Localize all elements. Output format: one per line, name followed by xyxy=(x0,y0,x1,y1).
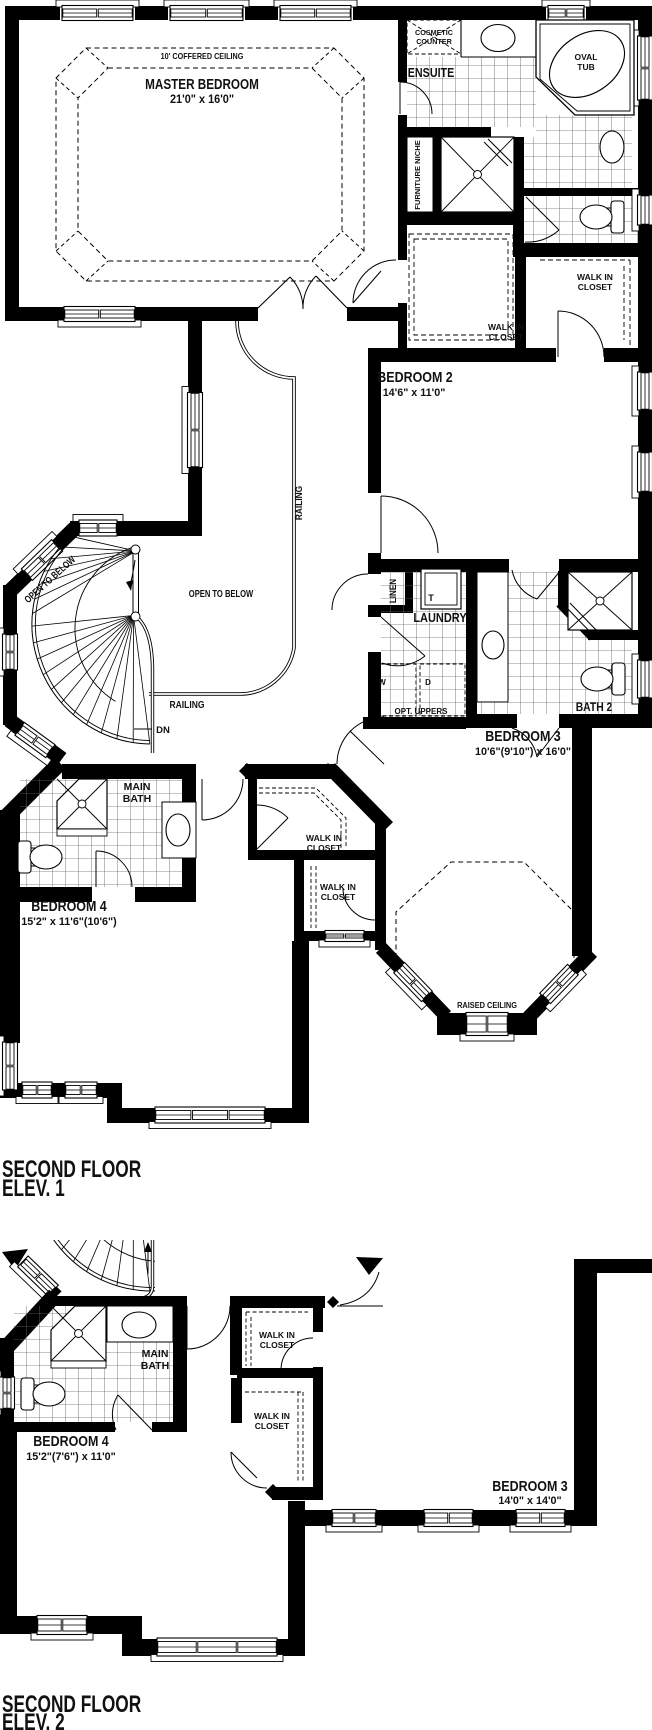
svg-text:MAIN: MAIN xyxy=(142,1348,169,1360)
svg-text:CLOSET: CLOSET xyxy=(255,1421,290,1431)
svg-text:CLOSET: CLOSET xyxy=(489,332,524,342)
svg-text:TUB: TUB xyxy=(577,62,594,72)
svg-text:LAUNDRY: LAUNDRY xyxy=(413,611,466,625)
svg-text:14'0" x 14'0": 14'0" x 14'0" xyxy=(498,1495,561,1507)
svg-text:WALK IN: WALK IN xyxy=(577,272,613,282)
svg-text:DN: DN xyxy=(156,725,170,736)
svg-text:14'6" x 11'0": 14'6" x 11'0" xyxy=(383,387,446,399)
svg-text:BEDROOM 2: BEDROOM 2 xyxy=(377,369,452,385)
svg-text:COSMETIC: COSMETIC xyxy=(415,28,453,37)
svg-text:CLOSET: CLOSET xyxy=(321,892,356,902)
svg-text:RAILING: RAILING xyxy=(294,486,305,520)
svg-text:BEDROOM 3: BEDROOM 3 xyxy=(485,728,561,744)
svg-text:D: D xyxy=(425,678,431,687)
svg-text:RAILING: RAILING xyxy=(170,699,205,710)
svg-text:BATH: BATH xyxy=(123,793,151,805)
svg-text:COUNTER: COUNTER xyxy=(416,37,452,46)
svg-text:ENSUITE: ENSUITE xyxy=(408,66,455,80)
svg-text:BEDROOM 4: BEDROOM 4 xyxy=(33,1433,109,1449)
svg-text:CLOSET: CLOSET xyxy=(578,282,613,292)
svg-text:CLOSET: CLOSET xyxy=(307,843,342,853)
svg-text:10' COFFERED CEILING: 10' COFFERED CEILING xyxy=(161,51,244,61)
svg-text:21'0" x 16'0": 21'0" x 16'0" xyxy=(170,94,234,106)
svg-text:WALK IN: WALK IN xyxy=(320,882,356,892)
svg-text:15'2"(7'6") x 11'0": 15'2"(7'6") x 11'0" xyxy=(26,1451,115,1463)
svg-text:W: W xyxy=(378,678,386,687)
svg-text:ELEV. 1: ELEV. 1 xyxy=(2,1175,65,1201)
svg-text:WALK IN: WALK IN xyxy=(254,1411,290,1421)
svg-text:WALK IN: WALK IN xyxy=(259,1330,295,1340)
svg-text:MAIN: MAIN xyxy=(124,781,151,793)
svg-text:MASTER BEDROOM: MASTER BEDROOM xyxy=(145,76,259,93)
svg-text:LINEN: LINEN xyxy=(388,579,399,603)
svg-text:WALK IN: WALK IN xyxy=(306,833,342,843)
svg-text:OPT. UPPERS: OPT. UPPERS xyxy=(395,707,449,716)
svg-text:WALK IN: WALK IN xyxy=(488,322,524,332)
svg-text:BATH 2: BATH 2 xyxy=(576,702,613,715)
svg-text:BEDROOM 4: BEDROOM 4 xyxy=(31,898,107,914)
svg-text:BATH: BATH xyxy=(141,1360,169,1372)
svg-text:15'2" x 11'6"(10'6"): 15'2" x 11'6"(10'6") xyxy=(21,916,117,928)
svg-text:10'6"(9'10") x 16'0": 10'6"(9'10") x 16'0" xyxy=(475,746,571,758)
svg-text:BEDROOM 3: BEDROOM 3 xyxy=(492,1478,568,1494)
svg-text:OVAL: OVAL xyxy=(575,52,598,62)
svg-text:OPEN TO BELOW: OPEN TO BELOW xyxy=(189,588,254,599)
svg-text:RAISED CEILING: RAISED CEILING xyxy=(457,1001,517,1011)
svg-text:ELEV. 2: ELEV. 2 xyxy=(2,1709,65,1730)
svg-text:T: T xyxy=(428,593,434,603)
svg-text:FURNITURE NICHE: FURNITURE NICHE xyxy=(413,140,422,210)
